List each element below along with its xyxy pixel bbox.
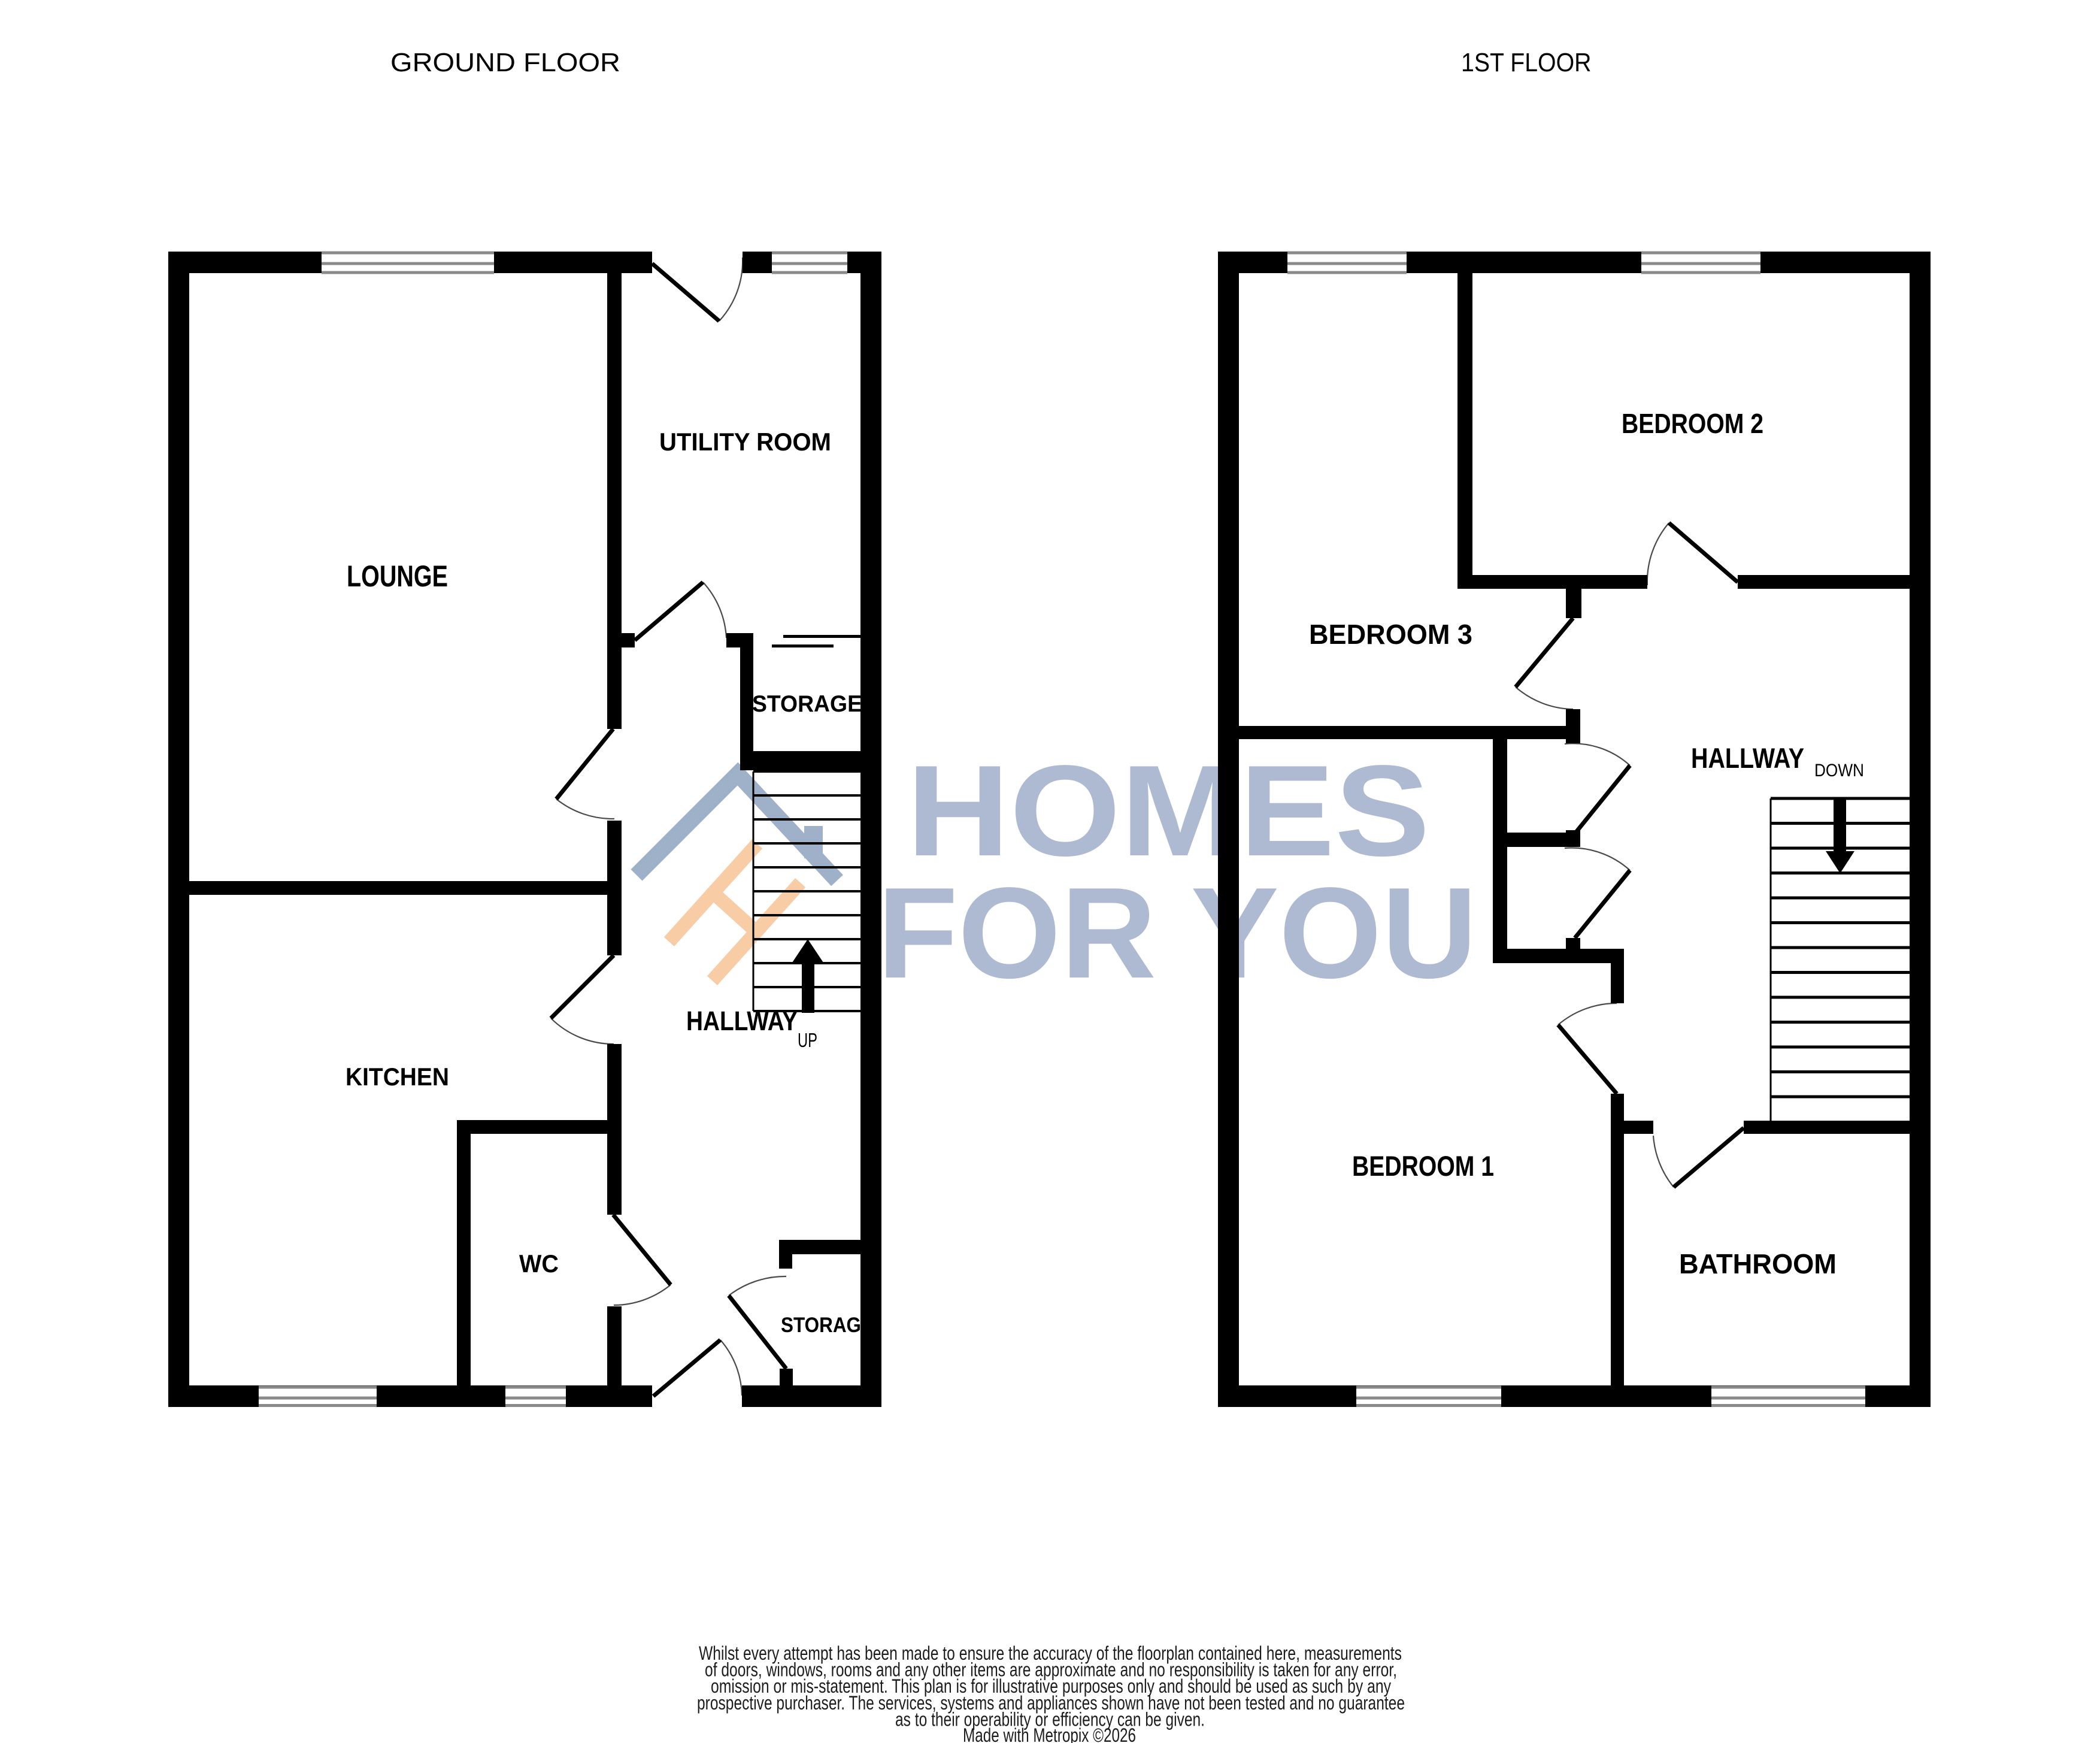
svg-text:UP: UP [798, 1029, 817, 1051]
svg-text:FOR YOU: FOR YOU [877, 860, 1477, 1005]
svg-text:BATHROOM: BATHROOM [1679, 1248, 1837, 1279]
svg-text:Made with Metropix ©2026: Made with Metropix ©2026 [963, 1724, 1136, 1743]
svg-text:KITCHEN: KITCHEN [346, 1063, 449, 1091]
svg-text:BEDROOM 2: BEDROOM 2 [1622, 408, 1763, 439]
svg-text:GROUND FLOOR: GROUND FLOOR [390, 49, 620, 77]
svg-text:STORAGE: STORAGE [752, 691, 862, 717]
svg-text:HALLWAY: HALLWAY [686, 1006, 798, 1036]
svg-text:UTILITY ROOM: UTILITY ROOM [659, 428, 831, 456]
svg-text:DOWN: DOWN [1814, 761, 1864, 780]
svg-text:LOUNGE: LOUNGE [347, 559, 448, 593]
svg-text:BEDROOM 3: BEDROOM 3 [1309, 619, 1472, 650]
svg-text:BEDROOM 1: BEDROOM 1 [1352, 1150, 1494, 1182]
svg-text:HALLWAY: HALLWAY [1691, 742, 1804, 774]
svg-text:WC: WC [519, 1249, 559, 1278]
svg-text:1ST FLOOR: 1ST FLOOR [1461, 49, 1592, 77]
svg-text:STORAGE: STORAGE [781, 1313, 874, 1337]
